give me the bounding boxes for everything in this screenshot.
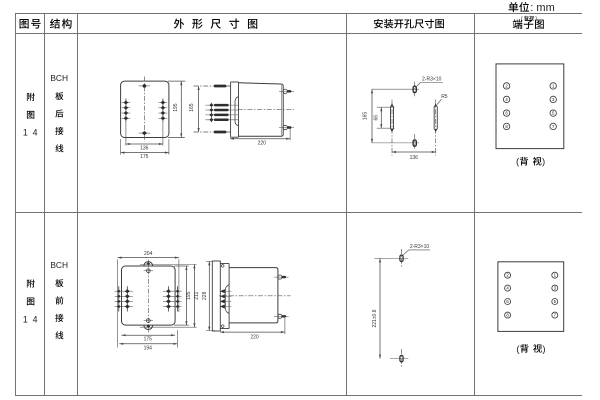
svg-text:(: ( bbox=[521, 16, 523, 22]
svg-text:194: 194 bbox=[144, 345, 153, 351]
svg-text:1 4: 1 4 bbox=[23, 128, 39, 138]
svg-text:): ) bbox=[535, 16, 537, 22]
svg-text:mm: mm bbox=[536, 2, 554, 14]
svg-text:204: 204 bbox=[144, 251, 153, 257]
svg-text:175: 175 bbox=[140, 154, 149, 160]
svg-text:220: 220 bbox=[250, 335, 259, 341]
svg-text:66: 66 bbox=[373, 115, 379, 121]
svg-text:2-R3×10: 2-R3×10 bbox=[422, 77, 442, 83]
svg-text:R5: R5 bbox=[441, 94, 448, 100]
svg-text:165: 165 bbox=[189, 103, 195, 112]
svg-text:165: 165 bbox=[362, 112, 368, 121]
svg-text:175: 175 bbox=[144, 337, 153, 343]
svg-text:220: 220 bbox=[258, 141, 267, 147]
svg-text:): ) bbox=[542, 157, 545, 168]
svg-text:195: 195 bbox=[186, 291, 192, 300]
svg-text:1 4: 1 4 bbox=[23, 314, 39, 324]
svg-text:221±0.8: 221±0.8 bbox=[372, 309, 378, 327]
svg-text:136: 136 bbox=[410, 155, 419, 161]
svg-text:BCH: BCH bbox=[50, 73, 68, 83]
svg-text:2-R3×10: 2-R3×10 bbox=[410, 244, 430, 250]
svg-text:): ) bbox=[542, 344, 545, 355]
svg-text:211: 211 bbox=[194, 292, 200, 300]
svg-text:195: 195 bbox=[173, 103, 179, 112]
svg-text::: : bbox=[530, 2, 533, 14]
svg-text:BCH: BCH bbox=[50, 260, 68, 270]
svg-text:228: 228 bbox=[202, 291, 208, 300]
svg-text:136: 136 bbox=[140, 146, 149, 152]
